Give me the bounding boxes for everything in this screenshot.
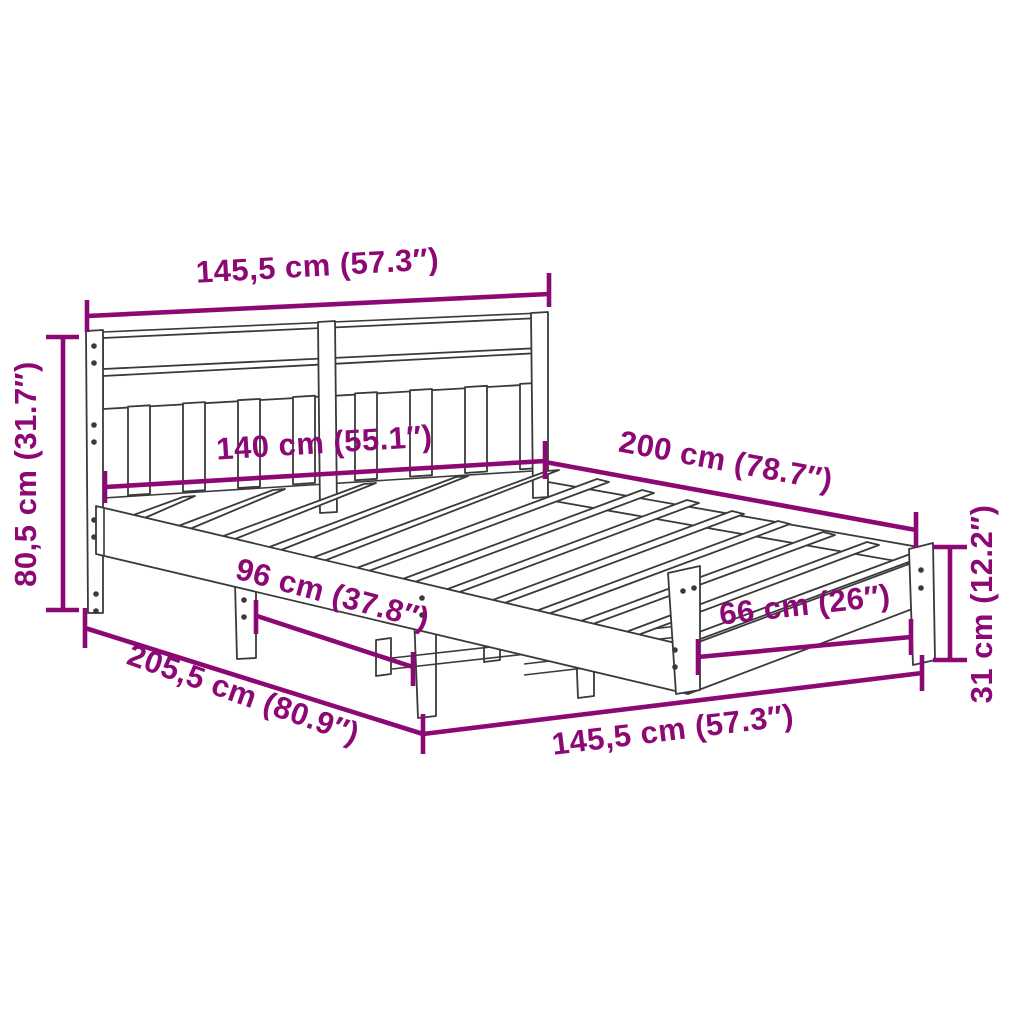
headboard-left-post bbox=[86, 330, 103, 613]
far-side-rail bbox=[548, 482, 930, 567]
dim-base-height: 31 cm (12.2″) bbox=[933, 505, 999, 704]
dim-mattress-length-label: 200 cm (78.7″) bbox=[616, 424, 835, 498]
dim-headboard-height: 80,5 cm (31.7″) bbox=[8, 337, 79, 610]
dim-headboard-height-label: 80,5 cm (31.7″) bbox=[8, 361, 43, 587]
bed-frame-drawing bbox=[86, 312, 935, 718]
headboard-center-post bbox=[318, 321, 337, 513]
bed-frame-dimension-diagram: 145,5 cm (57.3″) 80,5 cm (31.7″) 140 cm … bbox=[0, 0, 1024, 1024]
dim-frame-width-bottom-label: 145,5 cm (57.3″) bbox=[550, 697, 796, 761]
diagram-canvas: 145,5 cm (57.3″) 80,5 cm (31.7″) 140 cm … bbox=[0, 0, 1024, 1024]
dim-headboard-width-top-label: 145,5 cm (57.3″) bbox=[195, 241, 440, 290]
dim-base-height-label: 31 cm (12.2″) bbox=[964, 505, 999, 704]
dim-headboard-width-top: 145,5 cm (57.3″) bbox=[87, 241, 549, 332]
